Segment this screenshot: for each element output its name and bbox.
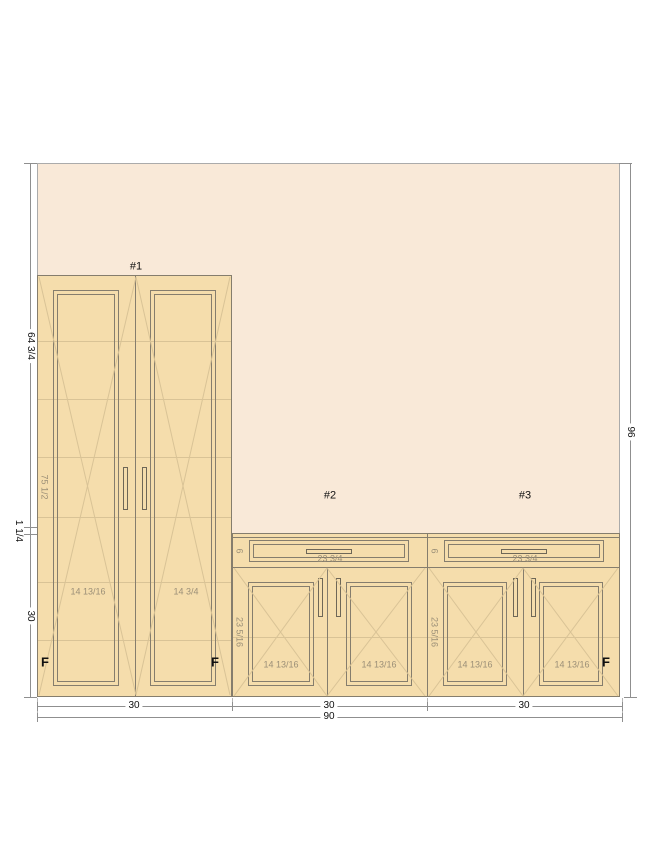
cabinet1-left-door-handle	[123, 467, 128, 510]
elevation-drawing: #1 #2 #3 75 1/2 14 13/16 14 3/4 6 23 3/4…	[0, 0, 648, 864]
cabinet3-left-door-handle	[513, 578, 518, 617]
cabinet2-center-stile	[327, 568, 328, 697]
cabinet2-right-door-handle	[336, 578, 341, 617]
cabinet3-left-door-width: 14 13/16	[457, 661, 492, 670]
cabinet2-label: #2	[324, 491, 336, 502]
dim-tick	[24, 163, 37, 164]
cabinet2-mid-rail	[233, 567, 427, 568]
dim-tick	[37, 702, 38, 711]
dim-width-cab3: 30	[515, 701, 532, 711]
cabinet3-left-door-panel	[443, 582, 507, 686]
cabinet2-left-door-width: 14 13/16	[263, 661, 298, 670]
cabinet3-f-right-label: F	[602, 656, 610, 669]
dim-total-height: 96	[625, 423, 635, 440]
cabinet3-top-rail	[428, 537, 619, 538]
cabinet3-right-door-width: 14 13/16	[554, 661, 589, 670]
dim-base-height: 30	[25, 607, 35, 624]
dim-tick	[622, 702, 623, 711]
door-panel-inner	[154, 294, 212, 682]
dim-width-cab2: 30	[320, 701, 337, 711]
cabinet2-right-door-width: 14 13/16	[361, 661, 396, 670]
cabinet2-left-door-handle	[318, 578, 323, 617]
cabinet1-label: #1	[130, 262, 142, 273]
cabinet3-right-door-panel	[539, 582, 603, 686]
cabinet1-right-door-handle	[142, 467, 147, 510]
dim-tick	[24, 534, 37, 535]
cabinet1-center-stile	[135, 276, 136, 696]
dim-tick	[37, 713, 38, 722]
cabinet1-right-door-panel	[150, 290, 216, 686]
door-panel-inner	[57, 294, 115, 682]
dim-tick	[619, 163, 632, 164]
cabinet2-drawer-width: 23 3/4	[317, 555, 342, 564]
dim-countertop-thickness: 1 1/4	[13, 517, 23, 545]
cabinet3-label: #3	[519, 491, 531, 502]
cabinet2-opening-height: 23 5/16	[235, 617, 244, 647]
dim-total-width: 90	[320, 712, 337, 722]
cabinet2-left-door-panel	[248, 582, 314, 686]
dim-tick	[232, 702, 233, 711]
cabinet1-f-right-label: F	[211, 656, 219, 669]
cabinet1-opening-height: 75 1/2	[40, 474, 49, 499]
dim-upper-left-height: 64 3/4	[25, 329, 35, 363]
dim-tick	[622, 713, 623, 722]
dim-width-cab1: 30	[125, 701, 142, 711]
cabinet2-right-door-panel	[346, 582, 412, 686]
cabinet1-left-door-width: 14 13/16	[70, 588, 105, 597]
cabinet3-opening-height: 23 5/16	[430, 617, 439, 647]
dim-tick	[624, 697, 637, 698]
cabinet1-right-door-width: 14 3/4	[173, 588, 198, 597]
cabinet3-right-door-handle	[531, 578, 536, 617]
cabinet1-left-door-panel	[53, 290, 119, 686]
cabinet3-drawer-width: 23 3/4	[512, 555, 537, 564]
cabinet3-center-stile	[523, 568, 524, 697]
cabinet1-f-left-label: F	[41, 656, 49, 669]
cabinet3-drawer-height: 6	[430, 548, 439, 553]
cabinet2-top-rail	[233, 537, 427, 538]
dim-tick	[24, 697, 37, 698]
cabinet2-drawer-height: 6	[235, 548, 244, 553]
dim-tick	[24, 527, 37, 528]
dim-tick	[427, 702, 428, 711]
